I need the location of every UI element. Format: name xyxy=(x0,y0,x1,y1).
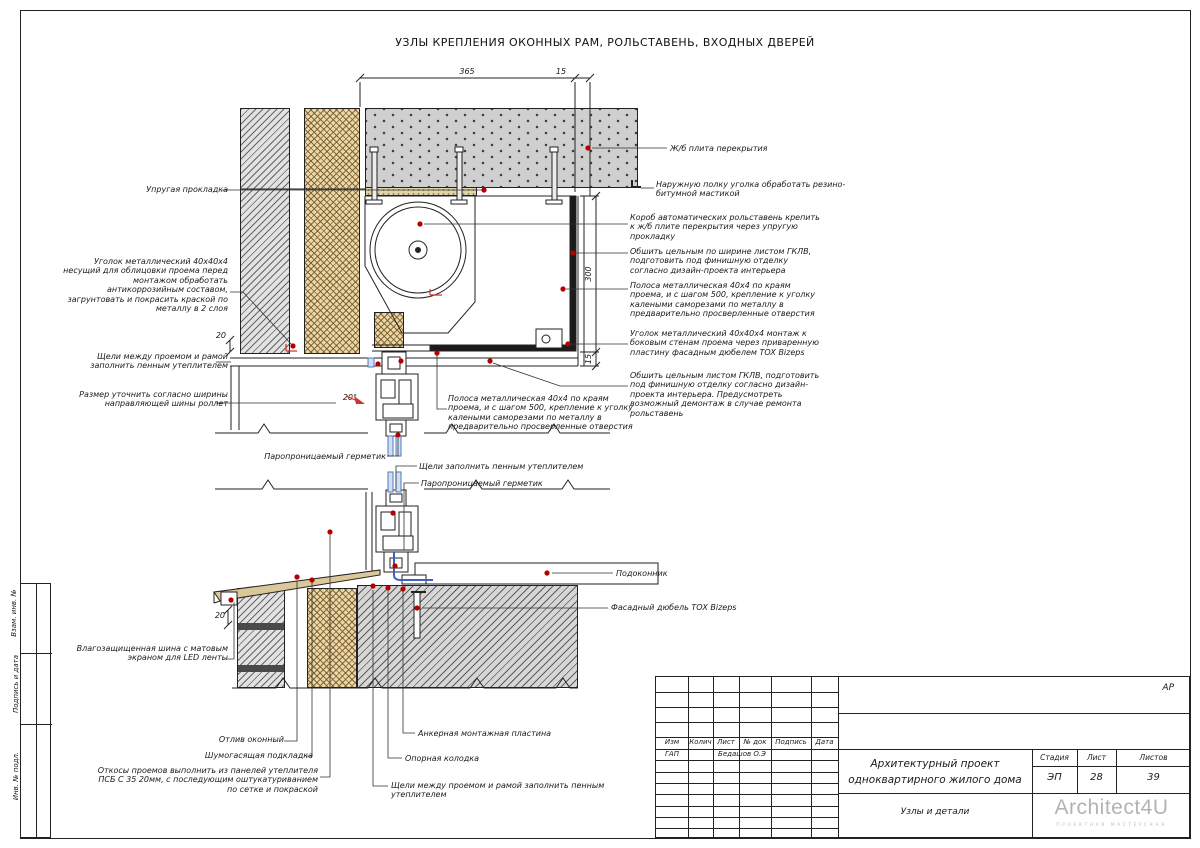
logo-subtext: ПРОЕКТНАЯ МАСТЕРСКАЯ xyxy=(1032,823,1191,828)
title-block: АР Изм Колич Лист № док Подпись Дата ГАП… xyxy=(655,676,1190,838)
annotation-vapor-sealant-1: Паропроницаемый герметик xyxy=(230,452,386,461)
annotation-facade-dowel: Фасадный дюбель TOX Bizeps xyxy=(611,603,781,612)
doc-title: Узлы и детали xyxy=(848,807,1022,817)
dim-15-right: 15 xyxy=(584,354,593,364)
sheets-label: Листов xyxy=(1116,753,1191,762)
col-list: Лист xyxy=(713,738,739,746)
col-ndok: № док xyxy=(739,738,771,746)
annotation-foam-fill: Щели заполнить пенным утеплителем xyxy=(419,462,639,471)
col-podpis: Подпись xyxy=(771,738,811,746)
annotation-foam-gap-bottom: Щели между проемом и рамой заполнить пен… xyxy=(391,781,646,800)
dim-365: 365 xyxy=(459,67,474,76)
stamp-code: АР xyxy=(1054,683,1174,693)
annotation-shutter-box: Короб автоматических рольставень крепить… xyxy=(630,213,820,241)
dim-300: 300 xyxy=(584,266,593,281)
annotation-drip-sill: Отлив оконный xyxy=(134,735,284,744)
annotation-foam-gap-left: Щели между проемом и рамой заполнить пен… xyxy=(70,352,228,371)
row-name: Бедашов О.Э xyxy=(708,750,776,758)
annotation-steel-angle-left: Уголок металлический 40х40х4 несущий для… xyxy=(60,257,228,314)
annotation-gkl-1: Обшить цельным по ширине листом ГКЛВ, по… xyxy=(630,247,820,275)
annotation-vapor-sealant-2: Паропроницаемый герметик xyxy=(421,479,621,488)
annotation-steel-strip-right: Полоса металлическая 40х4 по краям проем… xyxy=(630,281,826,319)
col-kolich: Колич xyxy=(688,738,713,746)
sheet-label: Лист xyxy=(1077,753,1116,762)
annotation-mastic: Наружную полку уголка обработать резино-… xyxy=(656,180,846,199)
col-data: Дата xyxy=(811,738,838,746)
annotation-slab: Ж/б плита перекрытия xyxy=(670,144,820,153)
annotation-size-note: Размер уточнить согласно ширины направля… xyxy=(70,390,228,409)
dim-20-bottom: 20 xyxy=(215,611,225,620)
annotation-windowsill: Подоконник xyxy=(616,569,716,578)
annotation-sound-pad: Шумогасящая подкладка xyxy=(160,751,313,760)
annotation-anchor-plate: Анкерная монтажная пластина xyxy=(418,729,598,738)
sheet-number: 28 xyxy=(1077,772,1116,783)
stage-label: Стадия xyxy=(1032,753,1077,762)
label-vzam-inv: Взам. инв. № xyxy=(10,580,18,646)
left-margin-strip xyxy=(20,583,51,838)
annotation-steel-strip-center: Полоса металлическая 40х4 по краям проем… xyxy=(448,394,644,432)
annotation-led-strip: Влагозащищенная шина с матовым экраном д… xyxy=(76,644,228,663)
project-title: Архитектурный проект одноквартирного жил… xyxy=(848,756,1022,789)
annotation-support-block: Опорная колодка xyxy=(405,754,525,763)
annotation-gkl-2: Обшить цельным листом ГКЛВ, подготовить … xyxy=(630,371,826,418)
company-logo: Architect4U ПРОЕКТНАЯ МАСТЕРСКАЯ xyxy=(1032,793,1191,839)
stage-value: ЭП xyxy=(1032,772,1077,783)
annotation-slopes: Откосы проемов выполнить из панелей утеп… xyxy=(88,766,318,794)
sheets-total: 39 xyxy=(1116,772,1191,783)
row-role: ГАП xyxy=(656,750,688,758)
col-izm: Изм xyxy=(656,738,688,746)
dim-20-top: 20 xyxy=(216,331,226,340)
annotation-steel-angle-right: Уголок металлический 40х40х4 монтаж к бо… xyxy=(630,329,826,357)
logo-text: Architect4U xyxy=(1032,793,1191,823)
annotation-elastic-gasket: Упругая прокладка xyxy=(70,185,228,194)
drawing-sheet: УЗЛЫ КРЕПЛЕНИЯ ОКОННЫХ РАМ, РОЛЬСТАВЕНЬ,… xyxy=(0,0,1200,848)
label-podpis-data: Подпись и дата xyxy=(12,650,20,718)
dim-15-top: 15 xyxy=(556,67,566,76)
label-inv-podl: Инв. № подл. xyxy=(12,731,20,821)
